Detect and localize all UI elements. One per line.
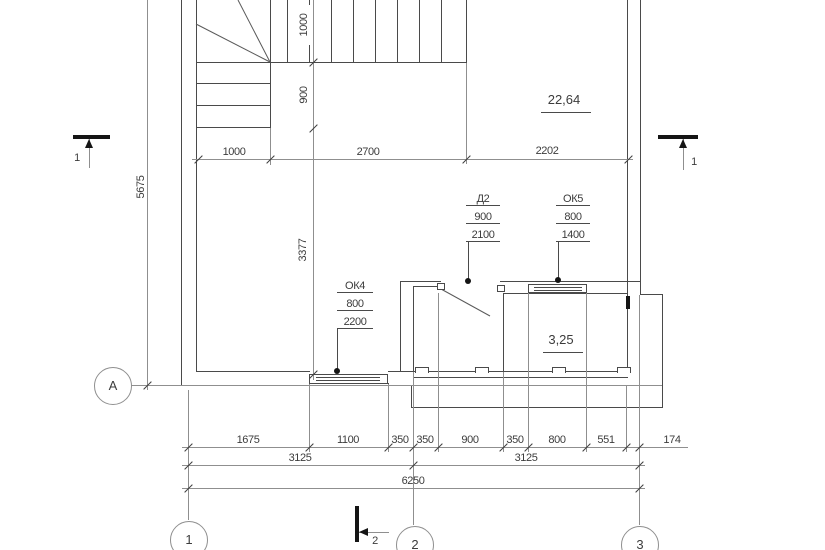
window-ok5-symbol — [528, 284, 529, 293]
opening-width: 900 — [466, 211, 500, 223]
opening-mark: ОК5 — [556, 193, 590, 205]
dim-label: 3125 — [496, 452, 556, 464]
dim-label: 1675 — [218, 434, 278, 446]
leader-dot — [555, 277, 561, 283]
dim-label: 6250 — [383, 475, 443, 487]
axis-circle-a: А — [94, 367, 132, 405]
dim-line-top — [192, 159, 633, 160]
window-ok4-symbol — [309, 374, 388, 375]
extension-line — [639, 295, 640, 525]
section-label: 1 — [70, 152, 84, 164]
opening-width: 800 — [337, 298, 373, 310]
label-rule — [466, 241, 500, 242]
window-ok5-symbol — [586, 284, 587, 293]
leader-dot — [334, 368, 340, 374]
window-ok5-symbol — [534, 290, 582, 291]
label-rule — [466, 205, 500, 206]
leader-line — [337, 329, 338, 370]
opening-width: 800 — [556, 211, 590, 223]
dim-line-left — [147, 0, 148, 390]
label-rule — [337, 328, 373, 329]
extension-line — [528, 293, 529, 452]
dim-label: 1000 — [210, 146, 258, 158]
label-rule — [556, 241, 590, 242]
window-ok4-symbol — [316, 377, 380, 378]
leader-line — [468, 242, 469, 281]
window-ok4-symbol — [309, 383, 389, 384]
dim-label-vertical: 3377 — [297, 230, 309, 270]
extension-line — [466, 63, 467, 164]
dim-label-vertical: 900 — [298, 75, 310, 115]
dim-label: 2700 — [344, 146, 392, 158]
section-arrow-icon — [679, 139, 687, 148]
label-rule — [556, 223, 590, 224]
label-rule — [337, 292, 373, 293]
window-ok4-symbol — [387, 374, 388, 384]
door-jamb — [497, 285, 505, 292]
balcony-edge-top — [640, 294, 663, 295]
balcony-edge-left — [411, 385, 412, 408]
floor-plan: 1000 2700 2202 1000 900 3377 5675 1675 1… — [0, 0, 825, 550]
section-cut-bar — [355, 506, 359, 542]
opening-height: 2100 — [466, 229, 500, 241]
dim-label: 900 — [445, 434, 495, 446]
axis-a-line — [131, 385, 662, 386]
dim-label: 800 — [532, 434, 582, 446]
opening-height: 2200 — [337, 316, 373, 328]
section-label: 1 — [687, 156, 701, 168]
dim-label: 174 — [652, 434, 692, 446]
section-arrow-icon — [85, 139, 93, 148]
opening-mark: ОК4 — [337, 280, 373, 292]
opening-mark: Д2 — [466, 193, 500, 205]
section-arrow-icon — [359, 528, 368, 536]
dim-line-row1 — [182, 447, 688, 448]
dim-label-vertical: 1000 — [298, 5, 310, 45]
leader-line — [558, 242, 559, 280]
label-rule — [556, 205, 590, 206]
opening-height: 1400 — [556, 229, 590, 241]
dim-label: 1100 — [318, 434, 378, 446]
sill-notch — [415, 367, 429, 373]
section-cut-bar — [658, 135, 698, 139]
extension-line — [586, 293, 587, 452]
dim-label: 350 — [410, 434, 440, 446]
wall-detail-mark — [626, 296, 630, 309]
window-ok4-symbol — [316, 380, 380, 381]
dim-label: 350 — [500, 434, 530, 446]
leader-dot — [465, 278, 471, 284]
extension-line — [438, 293, 439, 452]
window-ok5-symbol — [528, 292, 587, 293]
dim-label: 551 — [581, 434, 631, 446]
dim-line-stair — [313, 0, 314, 380]
sill-notch — [552, 367, 566, 373]
dim-label-vertical: 5675 — [135, 166, 147, 208]
dim-label: 2202 — [523, 145, 571, 157]
label-rule — [466, 223, 500, 224]
dim-label: 3125 — [270, 452, 330, 464]
room-area-label: 22,64 — [536, 92, 592, 107]
balcony-edge-right — [662, 294, 663, 408]
extension-line — [309, 384, 310, 452]
sill-notch — [475, 367, 489, 373]
section-label: 2 — [368, 535, 382, 547]
sill-notch — [617, 367, 631, 373]
label-rule — [337, 310, 373, 311]
room-area-label: 3,25 — [538, 332, 584, 347]
window-ok5-symbol — [534, 287, 582, 288]
extension-line — [188, 390, 189, 520]
door-jamb — [437, 283, 445, 290]
window-ok5-symbol — [528, 284, 587, 285]
room-area-underline — [541, 112, 591, 113]
room-area-underline — [543, 352, 583, 353]
